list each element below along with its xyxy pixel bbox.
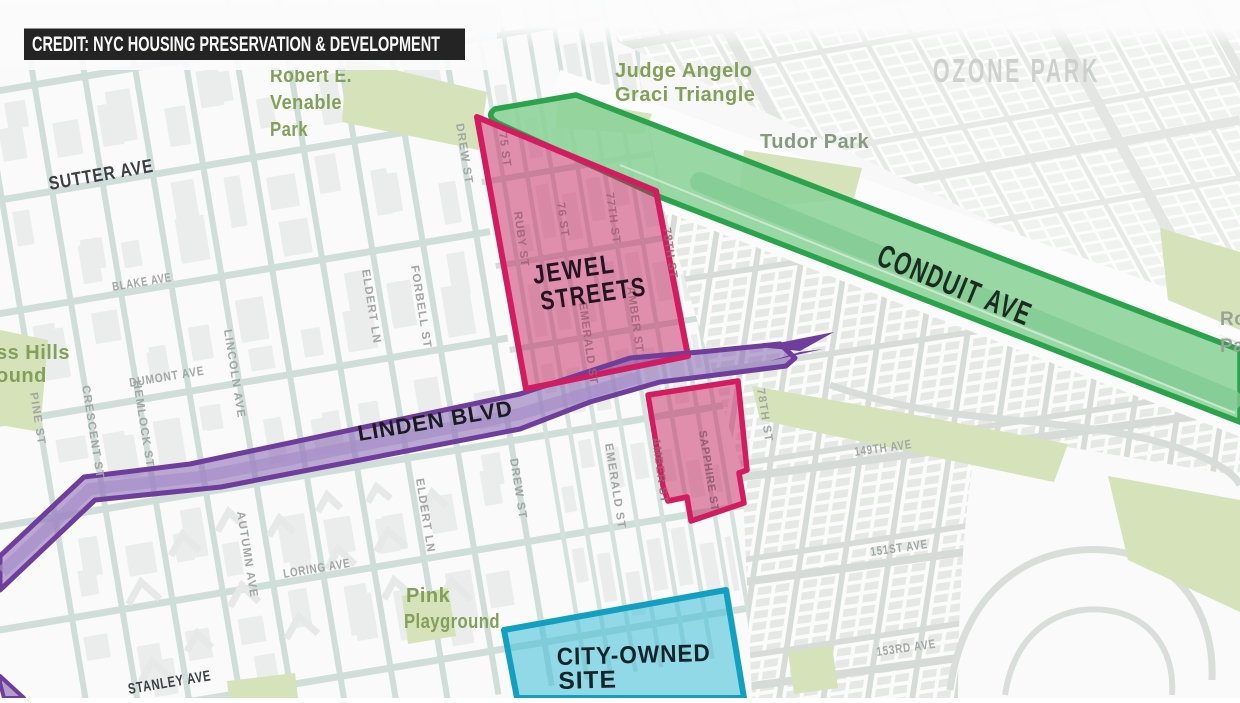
svg-text:Park: Park — [270, 119, 308, 141]
svg-text:Graci Triangle: Graci Triangle — [615, 84, 755, 106]
svg-text:Ro: Ro — [1220, 309, 1240, 330]
svg-text:CREDIT: NYC HOUSING PRESERVATI: CREDIT: NYC HOUSING PRESERVATION & DEVEL… — [32, 33, 440, 56]
svg-text:Tudor Park: Tudor Park — [760, 131, 869, 153]
svg-text:CITY-OWNED: CITY-OWNED — [556, 640, 711, 671]
svg-text:Venable: Venable — [270, 92, 342, 114]
svg-text:Pink: Pink — [406, 585, 451, 607]
svg-text:SITE: SITE — [558, 666, 617, 695]
svg-text:Pa: Pa — [1220, 336, 1240, 357]
svg-text:Judge Angelo: Judge Angelo — [615, 60, 752, 82]
svg-text:ss Hills: ss Hills — [0, 342, 70, 364]
svg-text:OZONE PARK: OZONE PARK — [933, 52, 1100, 89]
svg-text:Playground: Playground — [404, 611, 500, 633]
svg-text:ound: ound — [0, 365, 47, 387]
